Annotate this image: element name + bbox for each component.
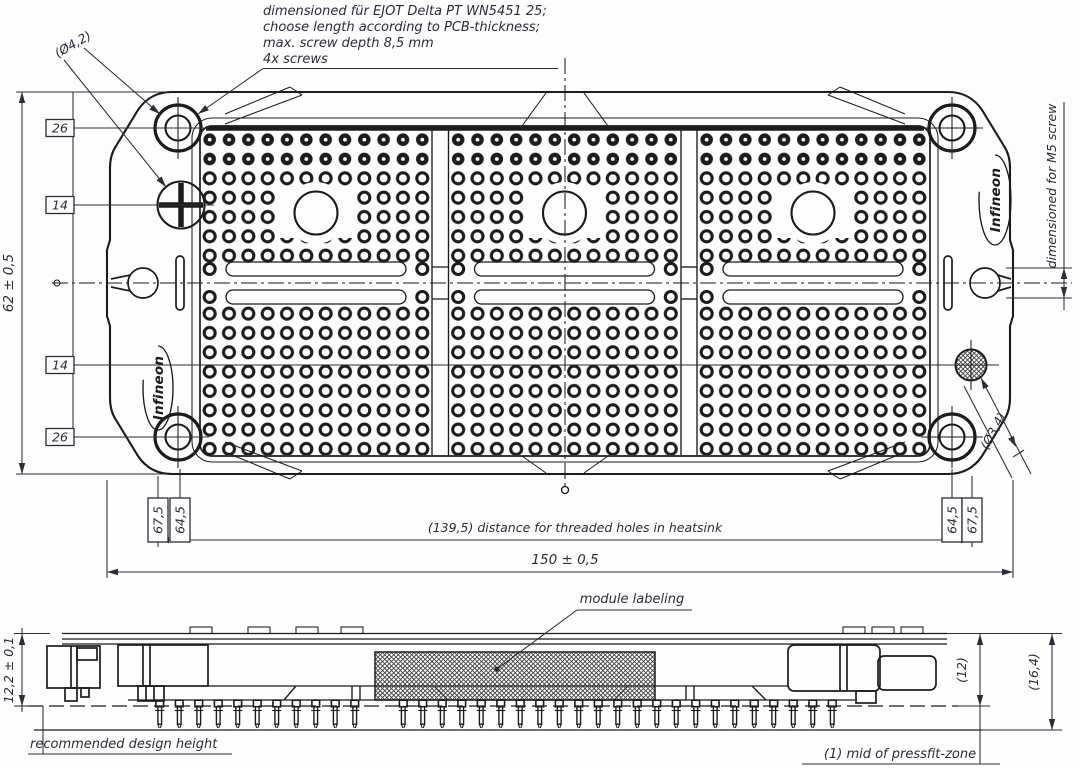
side-view [28,627,982,730]
technical-drawing-page: Infineon Infineon 62 ± 0,5 26 14 [0,0,1080,769]
dim-pin-hole-dia: (Ø3,4) [977,410,1009,452]
screw-note: dimensioned für EJOT Delta PT WN5451 25;… [198,4,558,114]
dim-body-height: (12) [954,657,969,683]
logo-text: Infineon [988,168,1004,232]
module-labeling-label: module labeling [580,592,684,607]
top-view: Infineon Infineon [52,58,1072,494]
pressfit-note: (1) mid of pressfit-zone [802,747,1000,764]
pressfit-pins-left [150,699,364,730]
pin-section-1 [202,130,430,455]
slot-lower [226,290,406,304]
pressfit-label: (1) mid of pressfit-zone [824,747,976,762]
drawing-canvas: Infineon Infineon 62 ± 0,5 26 14 [0,0,1080,769]
offset-64-5-right: 64,5 [945,506,960,534]
body-height-dimension: (12) [947,634,990,765]
dim-overall-width: 150 ± 0,5 [531,552,598,568]
total-height-dimension: (16,4) [982,634,1062,731]
right-body-block [788,645,936,703]
offset-64-5-left: 64,5 [173,506,188,534]
left-body-block [118,645,208,701]
m5-note: dimensioned for M5 screw [1044,103,1059,268]
screw-note-line4: 4x screws [263,52,328,67]
offset-26-bottom: 26 [52,430,68,445]
screw-note-line1: dimensioned für EJOT Delta PT WN5451 25; [263,4,547,19]
slot-lower [723,290,903,304]
design-height-dimension: 12,2 ± 0,1 [1,628,50,712]
dim-threaded-holes: (139,5) distance for threaded holes in h… [428,520,723,535]
dim-overall-height: 62 ± 0,5 [1,254,17,313]
baseplate [62,634,947,645]
clip-tabs [190,627,923,634]
logo-right: Infineon [979,155,1011,245]
dim-screw-hole-dia: (Ø4,2) [52,28,94,61]
offset-14-bottom: 14 [52,358,68,373]
screw-note-line3: max. screw depth 8,5 mm [263,36,434,51]
dim-design-height: 12,2 ± 0,1 [1,637,16,703]
offset-26-top: 26 [52,121,68,136]
screw-hole-callout: (Ø4,2) [52,28,166,187]
bottom-offset-boxes: 67,5 64,5 64,5 67,5 (139,5) distance for… [148,469,982,547]
label-area [375,652,655,700]
logo-left: Infineon [143,346,173,430]
centerline-marker-bottom [562,487,569,494]
left-mount-bracket [47,646,100,701]
screw-note-line2: choose length according to PCB-thickness… [263,20,540,35]
offset-67-5-right: 67,5 [965,506,980,534]
dim-total-height: (16,4) [1026,653,1041,691]
offset-14-top: 14 [52,198,68,213]
design-height-label: recommended design height [30,737,218,752]
pin-section-3 [699,130,927,455]
m5-dimension: dimensioned for M5 screw [1006,102,1072,310]
top-view-dimensions: 62 ± 0,5 26 14 14 26 (Ø4,2) [1,4,1072,578]
pressfit-pins-right [394,699,842,730]
offset-67-5-left: 67,5 [151,506,166,534]
